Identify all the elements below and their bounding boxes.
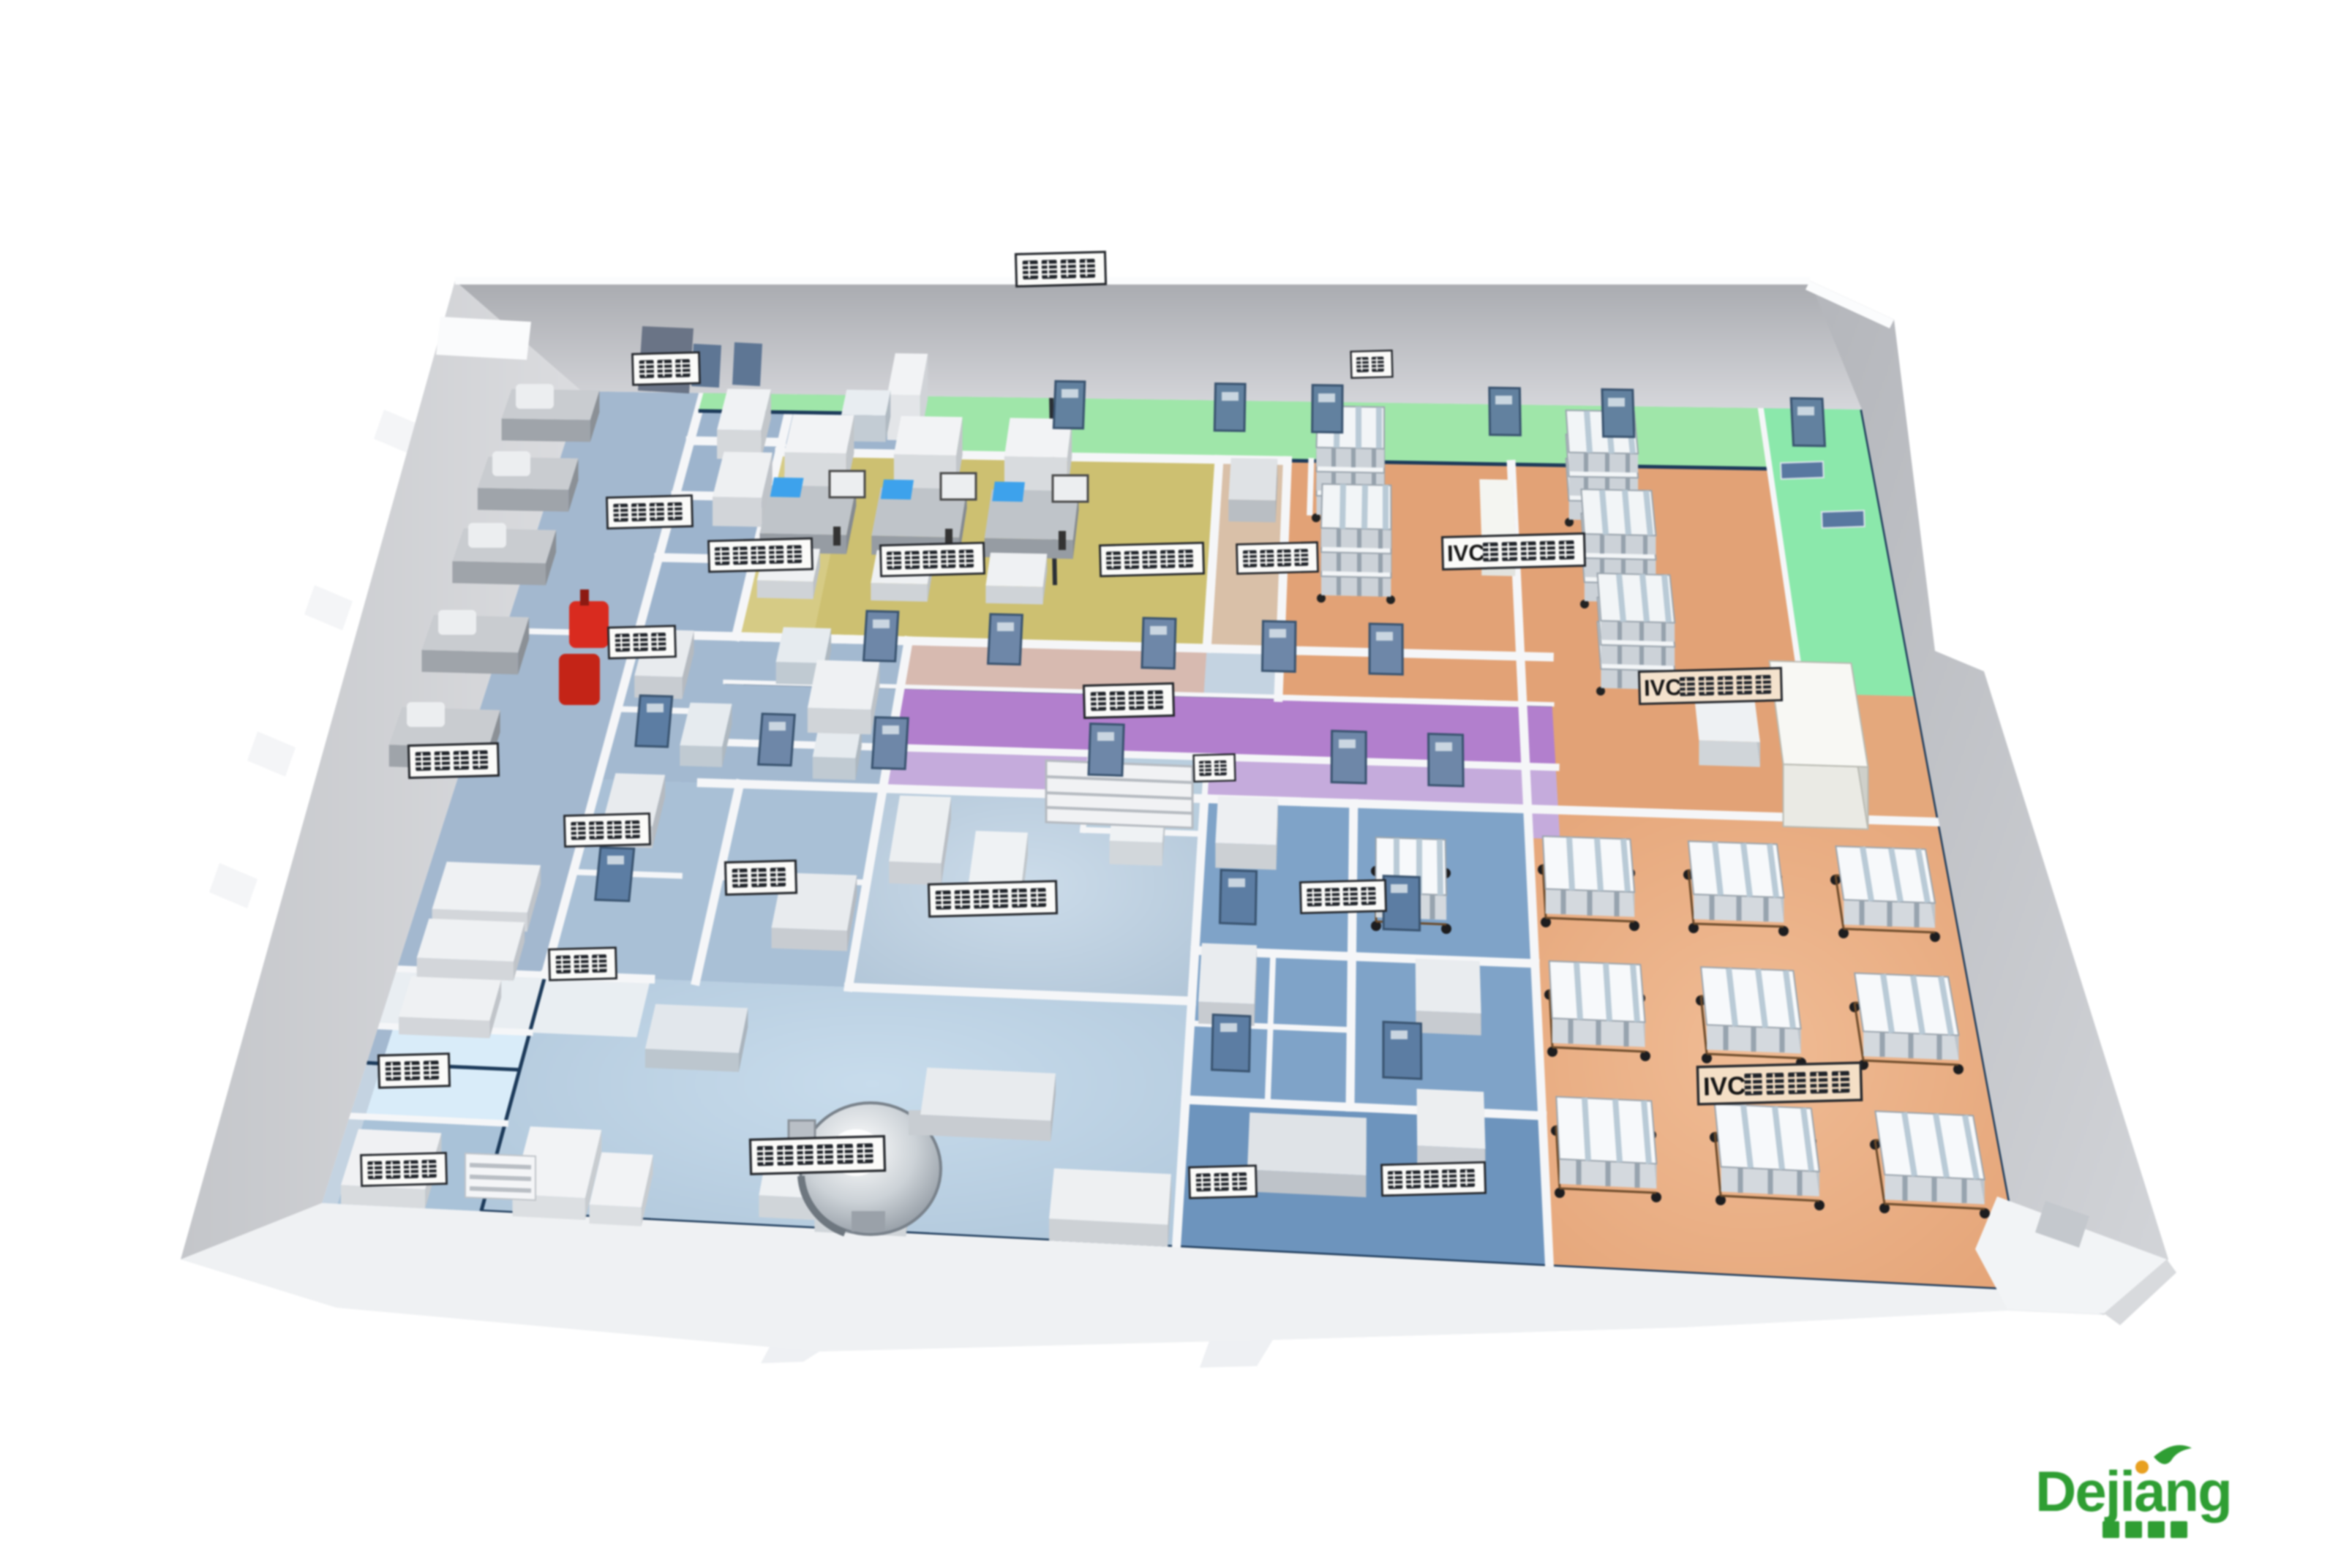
- svg-text:Dejiang: Dejiang: [2035, 1459, 2231, 1523]
- svg-text:IVC: IVC: [1447, 540, 1486, 566]
- svg-text:IVC: IVC: [1644, 674, 1683, 701]
- svg-text:IVC: IVC: [1703, 1071, 1746, 1101]
